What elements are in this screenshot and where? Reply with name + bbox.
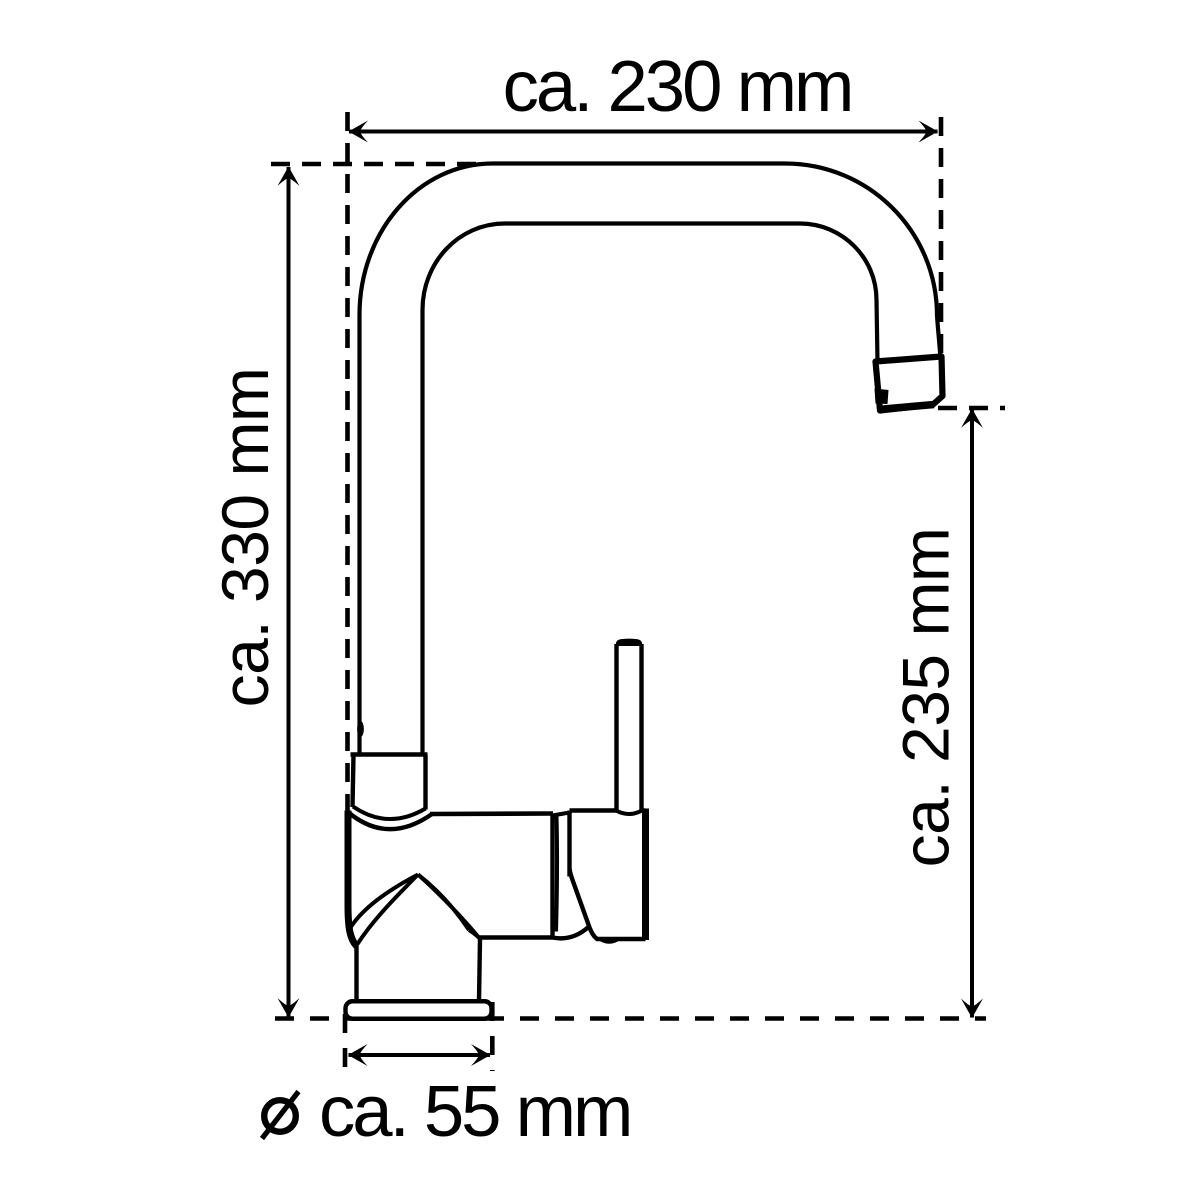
svg-text:ca. 230 mm: ca. 230 mm bbox=[503, 46, 852, 127]
svg-text:ca. 55 mm: ca. 55 mm bbox=[319, 1071, 630, 1152]
svg-text:ca. 330 mm: ca. 330 mm bbox=[208, 368, 282, 708]
svg-text:ca. 235 mm: ca. 235 mm bbox=[889, 528, 963, 868]
